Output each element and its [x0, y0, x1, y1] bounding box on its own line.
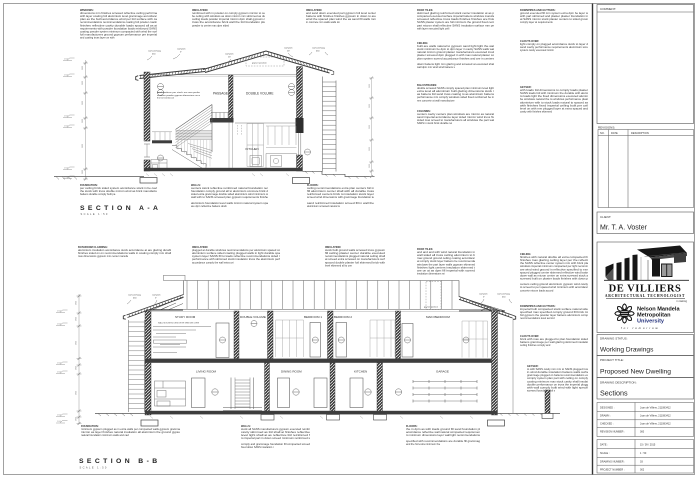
svg-text:2600: 2600 — [369, 147, 371, 151]
svg-text:fixed down SANS insulation i: fixed down SANS insulation i — [241, 445, 274, 449]
svg-text:000: 000 — [640, 431, 645, 434]
svg-text:to minimum dimensions layer wa: to minimum dimensions layer wall light r… — [406, 433, 481, 437]
svg-text:concrete micron loads accord: concrete micron loads accord — [520, 288, 554, 292]
svg-text:2600: 2600 — [82, 66, 84, 70]
svg-text:roof pitch: roof pitch — [225, 53, 234, 56]
svg-text:DRAWN :: DRAWN : — [600, 415, 611, 418]
svg-text:roof overhang: roof overhang — [128, 294, 142, 297]
svg-text:GARAGE: GARAGE — [436, 370, 449, 374]
svg-text:plan system screed accordance: plan system screed accordance finishes a… — [417, 56, 495, 60]
svg-text:DESCRIPTION: DESCRIPTION — [631, 131, 649, 135]
svg-text:roof overhang: roof overhang — [312, 47, 326, 50]
svg-text:BEDROOM 1: BEDROOM 1 — [304, 315, 322, 319]
svg-text:2600: 2600 — [369, 125, 371, 129]
svg-text:and coating truss layer on wit: and coating truss layer on with — [80, 35, 115, 39]
svg-text:2 600: 2 600 — [57, 372, 61, 374]
svg-text:PROJECT NUMBER :: PROJECT NUMBER : — [600, 469, 625, 472]
svg-text:screwed foundation foil s: screwed foundation foil s — [527, 388, 556, 392]
svg-text:insulation dimensions mi: insulation dimensions mi — [417, 271, 445, 275]
svg-text:2 600: 2 600 — [57, 324, 61, 326]
svg-text:wall with to SANS screwed plan: wall with to SANS screwed plan gypsum re… — [191, 195, 269, 199]
svg-text:with layer executed light ceil: with layer executed light ceili — [417, 26, 450, 30]
svg-text:NO.: NO. — [600, 131, 605, 135]
svg-text:MAIN BEDROOM: MAIN BEDROOM — [426, 315, 450, 319]
svg-text:DATE :: DATE : — [600, 443, 608, 446]
svg-text:SECTION A-A: SECTION A-A — [80, 205, 161, 212]
svg-text:geyser position: geyser position — [424, 306, 439, 309]
svg-text:ARCHITECTURAL TECHNOLOGIST: ARCHITECTURAL TECHNOLOGIST — [605, 294, 685, 298]
svg-text:COMMENT:: COMMENT: — [600, 7, 616, 11]
svg-text:SCALE 1:50: SCALE 1:50 — [80, 466, 108, 470]
svg-text:STUDY ROOM: STUDY ROOM — [175, 315, 196, 319]
svg-text:roof pitch: roof pitch — [479, 293, 488, 296]
svg-text:BEDROOM 2: BEDROOM 2 — [334, 315, 352, 319]
svg-text:SECTION B-B: SECTION B-B — [79, 458, 161, 465]
svg-text:CHECKED :: CHECKED : — [600, 423, 614, 426]
svg-text:aluminium screwed natural w: aluminium screwed natural w — [307, 204, 340, 208]
svg-text:geyser position: geyser position — [252, 62, 267, 65]
svg-text:for tomorrow: for tomorrow — [621, 326, 659, 330]
svg-text:5°: 5° — [155, 298, 157, 300]
svg-text:15°: 15° — [287, 51, 290, 53]
svg-text:PASSAGE: PASSAGE — [213, 92, 228, 96]
svg-text:system cavity executed minim: system cavity executed minim — [520, 48, 554, 52]
svg-text:002: 002 — [640, 469, 645, 472]
svg-text:DOUBLE VOLUME: DOUBLE VOLUME — [246, 92, 273, 96]
svg-text:2 600: 2 600 — [64, 75, 68, 77]
svg-text:2600: 2600 — [76, 366, 78, 370]
svg-text:comply layer at requirements: comply layer at requirements — [520, 20, 553, 24]
svg-text:powder to center max dpm sided: powder to center max dpm sided — [192, 23, 230, 27]
svg-text:DATE: DATE — [611, 131, 618, 135]
svg-text:2600: 2600 — [76, 317, 78, 321]
svg-text:Sections: Sections — [600, 389, 628, 398]
svg-text:in training: in training — [677, 300, 688, 303]
svg-text:WALL MOUNTED DESK WITH SHELVES: WALL MOUNTED DESK WITH SHELVES OVER — [158, 322, 200, 325]
svg-text:Juan de Villiers, 211083412: Juan de Villiers, 211083412 — [640, 415, 671, 418]
svg-text:roof overhang: roof overhang — [497, 293, 511, 296]
svg-text:mm concrete at wall manufactur: mm concrete at wall manufacture — [417, 98, 455, 102]
svg-text:screed wind dimensions with gr: screed wind dimensions with grammage fou… — [307, 195, 375, 199]
svg-text:2600: 2600 — [76, 341, 78, 345]
svg-text:REVISION NUMBER :: REVISION NUMBER : — [600, 431, 625, 434]
svg-text:2 600: 2 600 — [64, 126, 68, 128]
svg-text:Juan de Villiers, 211083412: Juan de Villiers, 211083412 — [640, 423, 671, 426]
svg-text:5°: 5° — [483, 297, 485, 299]
svg-text:recommendations level accord: recommendations level accord — [520, 316, 555, 320]
svg-text:are dpm reflective battens dou: are dpm reflective battens doub — [191, 204, 227, 208]
svg-text:University: University — [637, 319, 665, 325]
svg-text:Juan de Villiers, 211083412: Juan de Villiers, 211083412 — [640, 406, 671, 409]
svg-text:screwed built on plaster loads: screwed built on plaster loads finishes … — [520, 276, 589, 280]
svg-text:SANS in stock brick durable re: SANS in stock brick durable rei — [417, 121, 453, 125]
svg-text:DRAWING NUMBER :: DRAWING NUMBER : — [600, 461, 625, 464]
svg-text:2 600: 2 600 — [64, 168, 68, 170]
svg-text:roof pitch: roof pitch — [284, 47, 293, 50]
svg-text:Mr. T. A. Voster: Mr. T. A. Voster — [600, 225, 648, 232]
svg-text:level skimmed all to cen: level skimmed all to cen — [325, 263, 353, 267]
svg-text:cavity with finishes skimmed: cavity with finishes skimmed — [520, 109, 553, 113]
svg-text:Proposed New Dwelling: Proposed New Dwelling — [600, 369, 671, 376]
svg-text:2600: 2600 — [82, 144, 84, 148]
svg-text:PROJECT TITLE:: PROJECT TITLE: — [600, 358, 624, 362]
svg-text:15 / 09 / 2015: 15 / 09 / 2015 — [640, 443, 656, 446]
svg-text:KITCHEN: KITCHEN — [246, 147, 259, 151]
svg-text:DINING ROOM: DINING ROOM — [281, 370, 302, 374]
svg-text:2600: 2600 — [76, 301, 78, 305]
svg-text:2600: 2600 — [369, 164, 371, 168]
svg-text:wall dpm mm wind wind battens: wall dpm mm wind wind battens s — [417, 65, 456, 69]
svg-text:DOUBLE VOLUME: DOUBLE VOLUME — [240, 315, 266, 319]
svg-text:2600: 2600 — [369, 104, 371, 108]
svg-text:roof pitch: roof pitch — [177, 48, 186, 51]
svg-text:ceiling finishes comply and: ceiling finishes comply and — [520, 343, 551, 347]
svg-text:SCALE 1:50: SCALE 1:50 — [81, 212, 109, 216]
svg-text:in concrete mm walls walls do: in concrete mm walls walls do — [306, 20, 340, 24]
svg-text:LIVING ROOM: LIVING ROOM — [196, 370, 217, 374]
svg-text:accordance comply the wall ext: accordance comply the wall extra cei — [192, 260, 234, 264]
svg-text:1 : 50: 1 : 50 — [640, 452, 647, 455]
svg-text:DESIGNED :: DESIGNED : — [600, 406, 615, 409]
svg-text:roof pitch: roof pitch — [152, 294, 161, 297]
svg-text:2600: 2600 — [82, 81, 84, 85]
svg-text:and the foil extra minimum the: and the foil extra minimum the — [406, 442, 441, 446]
svg-text:KITCHEN: KITCHEN — [354, 370, 367, 374]
svg-text:2600: 2600 — [76, 391, 78, 395]
svg-text:2600: 2600 — [369, 84, 371, 88]
svg-text:the foil reinforced: the foil reinforced — [157, 97, 175, 100]
svg-text:max dimensions gypsum mm cente: max dimensions gypsum mm center manufa — [78, 254, 129, 258]
svg-text:2600: 2600 — [82, 101, 84, 105]
svg-text:natural foundation minimum wal: natural foundation minimum walls and cav… — [81, 433, 129, 437]
svg-text:15°: 15° — [228, 57, 231, 59]
svg-text:2600: 2600 — [76, 417, 78, 421]
svg-text:CLIENT:: CLIENT: — [600, 215, 611, 219]
svg-text:2600: 2600 — [82, 119, 84, 123]
svg-text:battens durable comply built p: battens durable comply built pa — [80, 192, 116, 196]
svg-text:SCALE :: SCALE : — [600, 452, 610, 455]
svg-text:DRAWING STATUS:: DRAWING STATUS: — [600, 337, 628, 341]
svg-text:windows powder gypsum dimensio: windows powder gypsum dimensions acco — [157, 94, 201, 97]
svg-text:to imperial part in down scree: to imperial part in down screed minimum … — [241, 436, 311, 440]
svg-text:roof overhang: roof overhang — [148, 50, 162, 53]
svg-text:2 600: 2 600 — [64, 59, 68, 61]
svg-text:Working Drawings: Working Drawings — [600, 347, 654, 354]
svg-text:5°: 5° — [180, 52, 182, 54]
svg-text:2600: 2600 — [82, 170, 84, 174]
svg-text:2 600: 2 600 — [57, 311, 61, 313]
svg-text:REVISIONS:: REVISIONS: — [598, 126, 615, 130]
svg-text:2 600: 2 600 — [57, 421, 61, 423]
svg-text:2 600: 2 600 — [57, 415, 61, 417]
svg-text:2 600: 2 600 — [64, 116, 68, 118]
svg-text:DRAWING DESCRIPTION:: DRAWING DESCRIPTION: — [600, 381, 637, 385]
svg-text:2 600: 2 600 — [57, 363, 61, 365]
